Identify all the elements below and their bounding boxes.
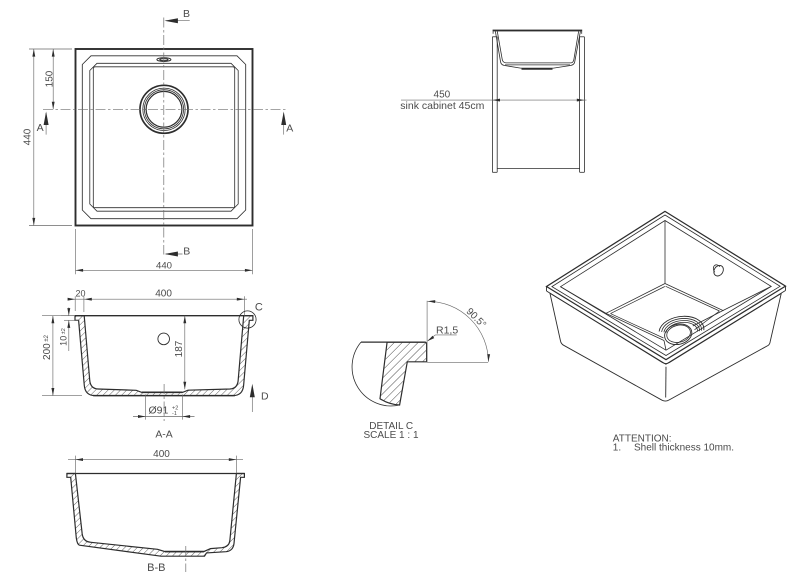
svg-text:400: 400 — [153, 449, 170, 460]
svg-text:B: B — [183, 8, 190, 20]
svg-text:440: 440 — [156, 260, 172, 271]
svg-text:-1: -1 — [172, 411, 177, 417]
svg-text:150: 150 — [45, 70, 56, 87]
svg-text:R1,5: R1,5 — [436, 324, 458, 336]
svg-text:C: C — [255, 302, 263, 314]
svg-text:440: 440 — [23, 128, 34, 145]
svg-text:SCALE 1 : 1: SCALE 1 : 1 — [363, 430, 418, 441]
svg-text:Shell thickness 10mm.: Shell thickness 10mm. — [634, 443, 734, 454]
svg-text:187: 187 — [174, 340, 185, 357]
svg-text:A: A — [37, 122, 44, 134]
svg-text:400: 400 — [155, 289, 172, 300]
svg-text:Ø91: Ø91 — [149, 405, 169, 417]
svg-text:450: 450 — [434, 90, 451, 101]
svg-text:B: B — [183, 245, 190, 257]
svg-text:D: D — [261, 391, 269, 403]
svg-text:20: 20 — [75, 288, 85, 298]
svg-text:A-A: A-A — [155, 430, 172, 441]
svg-text:1.: 1. — [613, 443, 621, 454]
svg-text:B-B: B-B — [147, 562, 165, 574]
svg-text:sink cabinet 45cm: sink cabinet 45cm — [400, 100, 484, 112]
svg-text:A: A — [286, 123, 293, 135]
